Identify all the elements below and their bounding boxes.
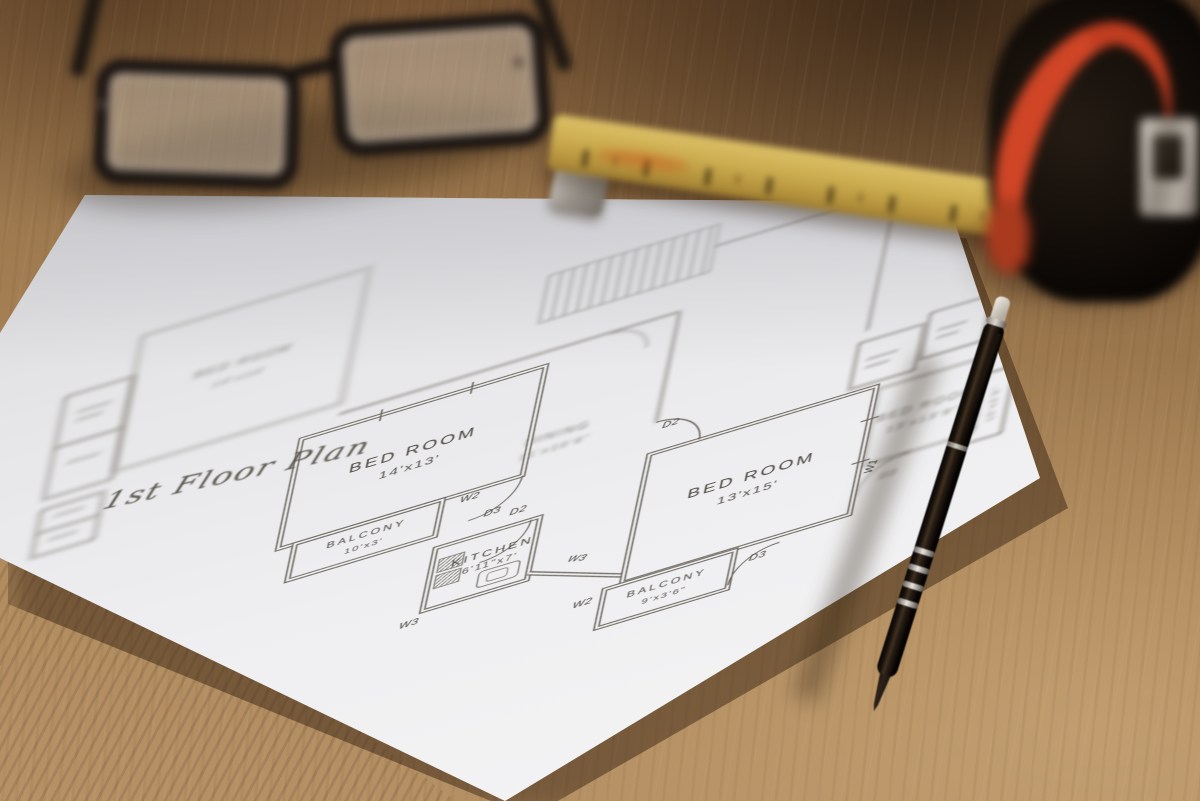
door-marker-d2-kitchen: D2 [509,503,528,517]
eyeglass-right-lens [328,11,553,158]
eyeglass-hinge-icon [98,100,107,109]
corridor-wall [339,312,680,415]
illegible-small-text [48,402,112,540]
eyeglass-left-lens [93,58,301,189]
window-marker-w2b: W2 [572,596,594,611]
window-marker-w3b: W3 [565,553,589,564]
window-marker-w3: W3 [398,617,420,632]
room-balcony2: BALCONY 9'x3'6" [596,550,735,628]
tape-measure-orange-patch [986,198,1030,274]
tape-measure [988,0,1200,302]
room-kitchen: KITCHEN 6'11"x7' [422,517,540,612]
eyeglass-hinge-icon [514,58,523,67]
eyeglasses [0,0,620,260]
tape-measure-belt-clip [1140,118,1198,216]
door-marker-d3: D3 [483,505,502,519]
blurred-upper-left-rooms: BED ROOM 14'x14' [31,268,370,558]
door-marker-d2-bedroom2: D2 [661,416,680,430]
room-balcony1: BALCONY 10'x3' [287,500,443,581]
door-marker-d3b: D3 [748,549,767,563]
photo-scene: BED ROOM 14'x14' DINING 11'x10'6" BED RO… [0,0,1200,801]
plan-title: 1st Floor Plan [99,431,377,515]
tape-measure-clip-slot [1153,135,1183,179]
